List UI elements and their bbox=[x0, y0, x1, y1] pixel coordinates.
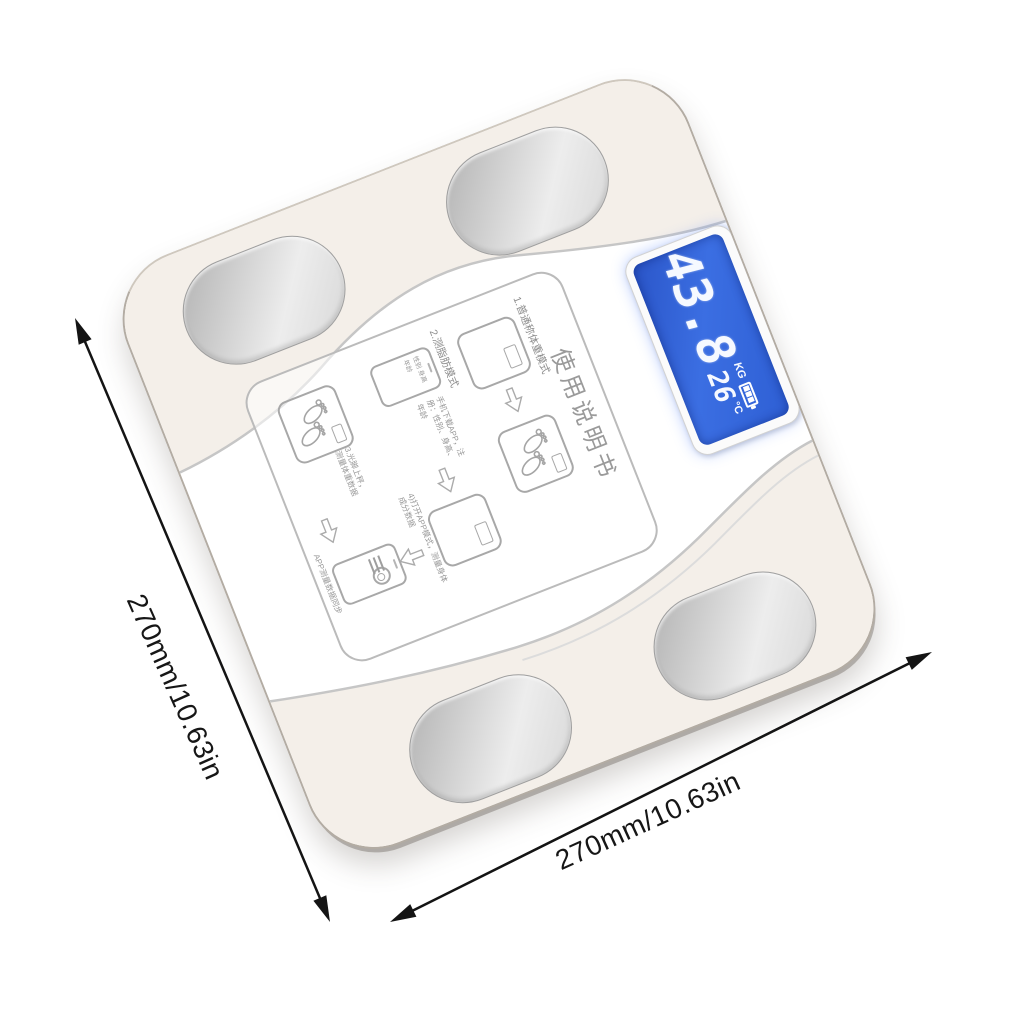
weight-readout: 43.8 bbox=[652, 245, 745, 370]
flow-arrow-icon bbox=[495, 384, 528, 417]
temperature-unit-label: °C bbox=[730, 400, 746, 416]
caption-register: 手机下载APP，注册：性别、身高、年龄 bbox=[414, 395, 466, 466]
product-photo: 43.8 KG 26 °C bbox=[0, 0, 1010, 1010]
phone-app-sync-icon bbox=[330, 541, 409, 607]
flow-arrow-icon bbox=[428, 465, 461, 498]
flow-arrow-icon bbox=[310, 515, 343, 548]
feet-step1-icon bbox=[495, 412, 577, 496]
phone-fields-text: 性别 身高 年龄 bbox=[400, 355, 430, 392]
caption-step: 3.光脚上秤，测量体重数据 bbox=[332, 446, 371, 504]
